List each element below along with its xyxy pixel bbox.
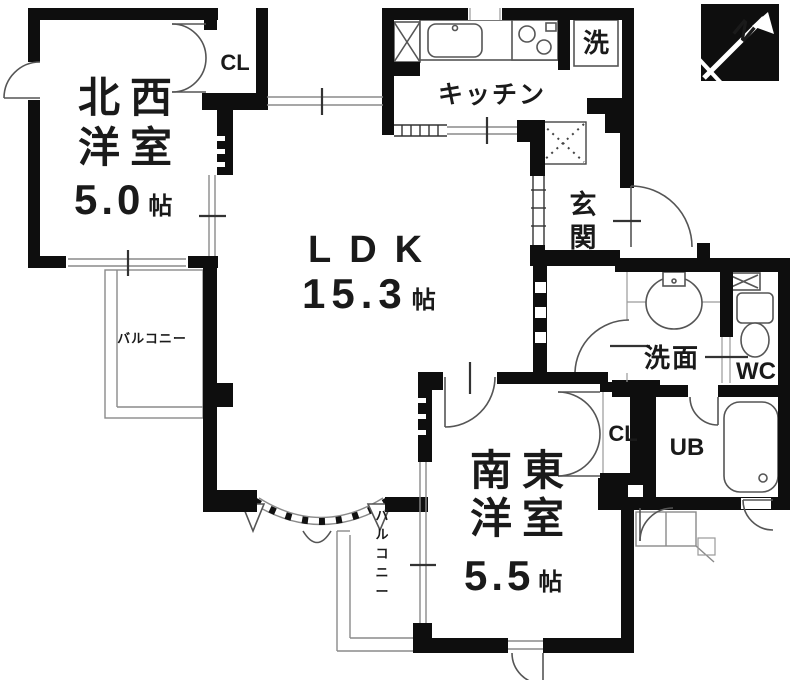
- floor-plan-page: 北西 洋室 5.0帖 LDK 15.3帖 南東 洋室 5.5帖 キッチン 洗 玄…: [0, 0, 800, 680]
- balcony-south-label: バルコニー: [375, 508, 388, 599]
- entrance-tile: [540, 122, 586, 164]
- washroom-label: 洗面: [644, 343, 700, 373]
- se-room-label-line1: 南東: [470, 447, 574, 494]
- se-room-balcony-door: [512, 653, 543, 680]
- nw-closet-label: CL: [220, 50, 249, 75]
- nw-room-label-line1: 北西: [78, 74, 182, 121]
- ldk-size: 15.3帖: [302, 270, 442, 317]
- ldk-label: LDK: [308, 229, 440, 271]
- nw-room-label-line2: 洋室: [78, 124, 182, 171]
- wc-label: WC: [736, 358, 776, 385]
- sink-icon: [428, 24, 482, 57]
- se-room-label-line2: 洋室: [470, 495, 574, 542]
- entrance-door: [613, 186, 692, 247]
- bathtub-icon: [724, 402, 778, 492]
- washroom-door: [575, 320, 650, 372]
- bay-window: [242, 498, 391, 543]
- stove-icon: [512, 20, 558, 60]
- se-closet-label: CL: [608, 421, 637, 446]
- service-door: [640, 508, 673, 541]
- laundry-label: 洗: [583, 28, 609, 58]
- refrigerator-icon: [394, 22, 420, 62]
- entrance-label: 玄関: [570, 189, 597, 253]
- se-room-door: [445, 362, 495, 427]
- se-room-size: 5.5帖: [464, 552, 566, 599]
- ub-label: UB: [670, 434, 705, 461]
- toilet-icon: [727, 273, 773, 357]
- kitchen-label: キッチン: [438, 81, 546, 109]
- floor-plan-drawing: 北西 洋室 5.0帖 LDK 15.3帖 南東 洋室 5.5帖 キッチン 洗 玄…: [0, 0, 800, 680]
- compass-icon: N: [697, 4, 779, 84]
- balcony-west-label: バルコニー: [117, 331, 187, 346]
- washbasin-icon: [627, 272, 720, 329]
- nw-room-size: 5.0帖: [74, 176, 176, 223]
- unit-bath-door: [690, 397, 718, 425]
